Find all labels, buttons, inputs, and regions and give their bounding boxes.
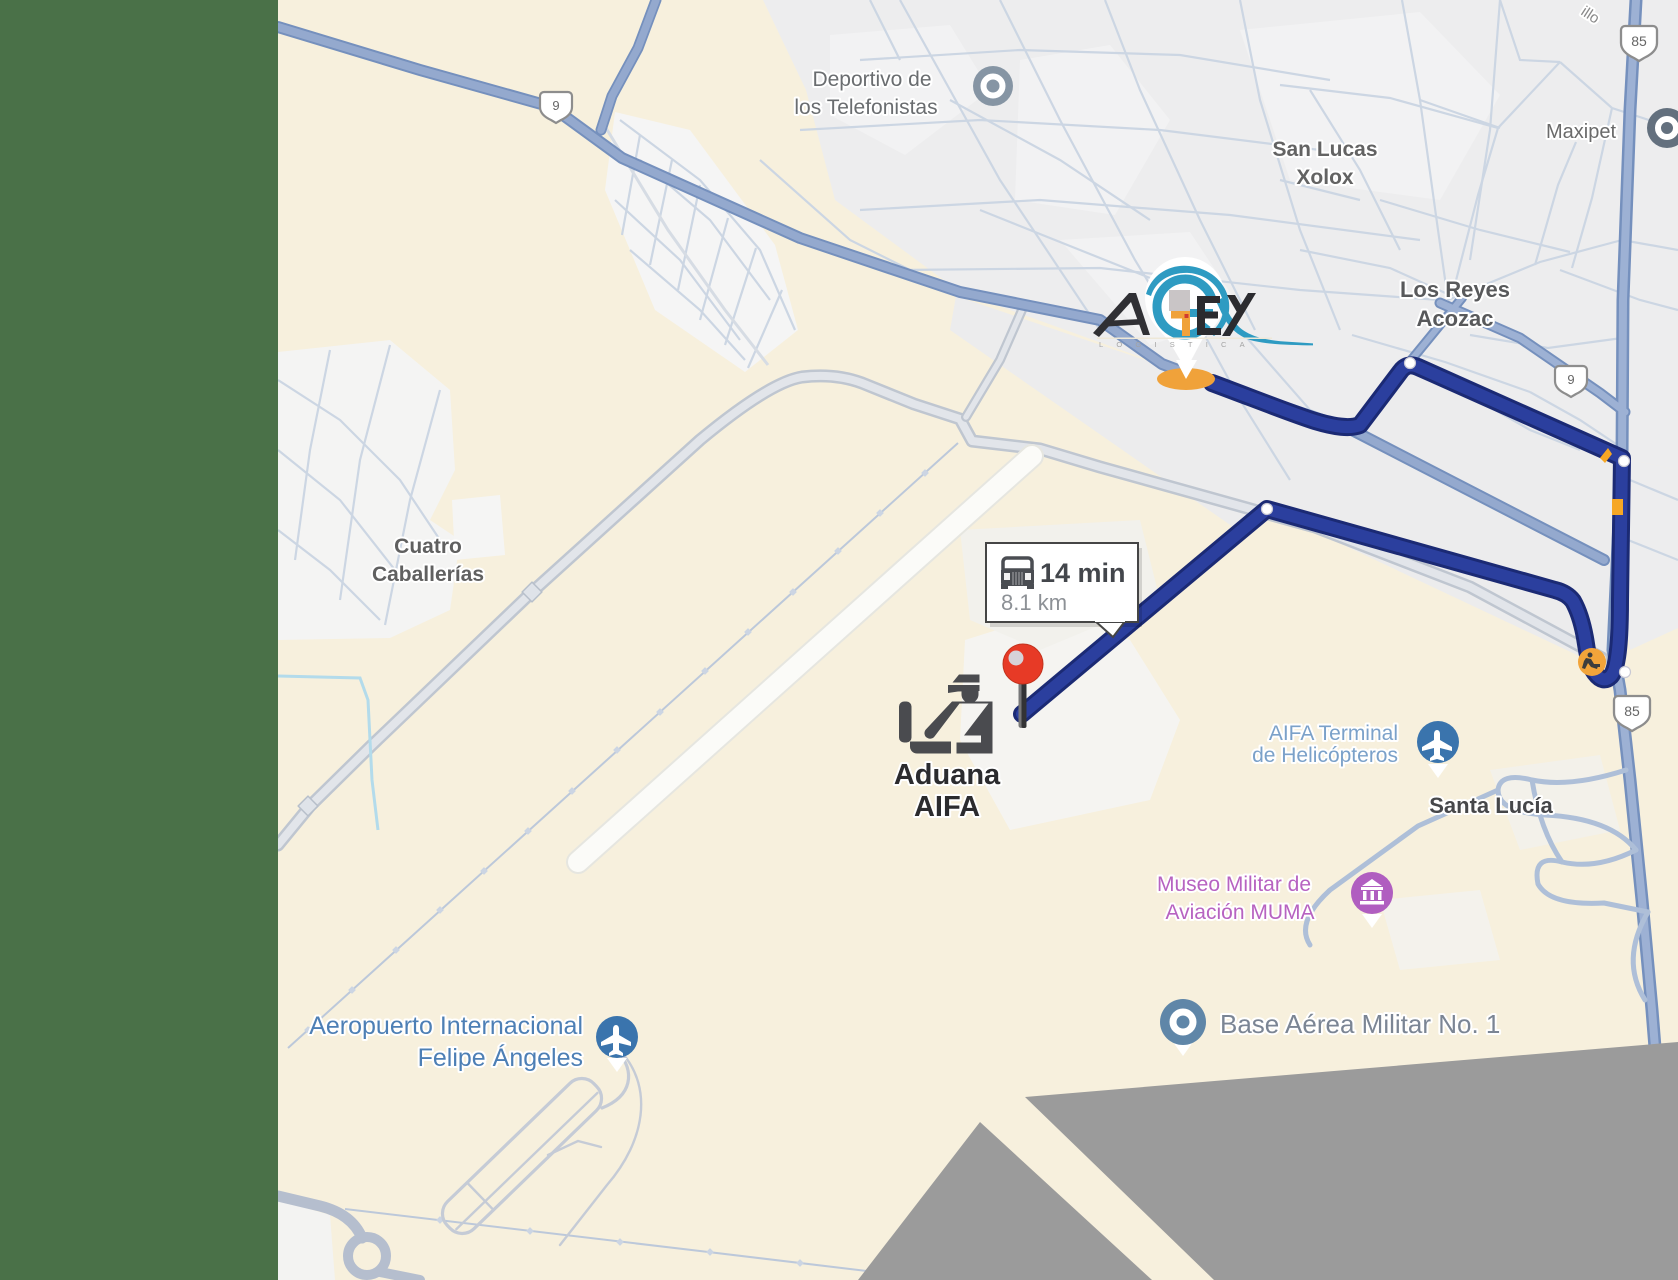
svg-text:Aviación MUMA: Aviación MUMA — [1166, 901, 1315, 924]
svg-text:85: 85 — [1631, 33, 1647, 49]
svg-text:Maxipet: Maxipet — [1546, 121, 1616, 143]
svg-text:AIFA: AIFA — [914, 791, 980, 823]
svg-text:85: 85 — [1624, 703, 1640, 719]
svg-text:Los Reyes: Los Reyes — [1400, 277, 1510, 302]
svg-text:14 min: 14 min — [1040, 558, 1126, 588]
svg-text:9: 9 — [552, 98, 559, 113]
svg-text:Aduana: Aduana — [894, 759, 1001, 791]
svg-text:de Helicópteros: de Helicópteros — [1252, 744, 1398, 767]
svg-text:Felipe Ángeles: Felipe Ángeles — [418, 1043, 583, 1072]
svg-text:San Lucas: San Lucas — [1272, 138, 1377, 161]
svg-text:Acozac: Acozac — [1416, 306, 1493, 331]
svg-text:Caballerías: Caballerías — [372, 563, 484, 586]
svg-text:8.1 km: 8.1 km — [1001, 590, 1067, 615]
svg-text:LOGISTICA: LOGISTICA — [1099, 340, 1258, 349]
svg-text:9: 9 — [1567, 372, 1574, 387]
svg-text:Santa Lucía: Santa Lucía — [1429, 793, 1553, 818]
svg-text:Museo Militar de: Museo Militar de — [1157, 873, 1311, 896]
svg-text:los Telefonistas: los Telefonistas — [794, 96, 937, 119]
svg-text:Deportivo de: Deportivo de — [812, 68, 931, 91]
svg-text:Xolox: Xolox — [1296, 166, 1353, 189]
svg-text:Aeropuerto Internacional: Aeropuerto Internacional — [309, 1012, 583, 1040]
svg-text:Base Aérea Militar No. 1: Base Aérea Militar No. 1 — [1220, 1009, 1500, 1039]
svg-text:Cuatro: Cuatro — [394, 535, 462, 558]
svg-text:AIFA Terminal: AIFA Terminal — [1269, 722, 1398, 745]
